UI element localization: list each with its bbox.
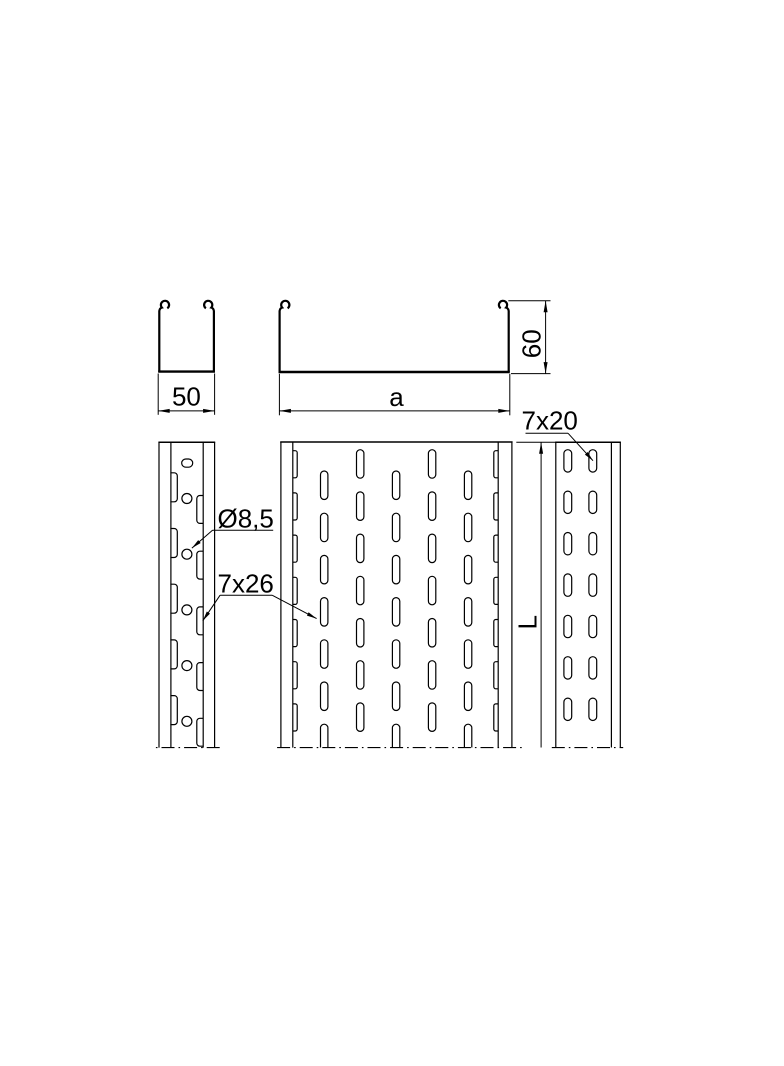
svg-text:L: L — [513, 615, 543, 629]
svg-text:50: 50 — [172, 381, 201, 411]
svg-text:Ø8,5: Ø8,5 — [218, 503, 274, 533]
svg-text:a: a — [389, 382, 404, 412]
svg-text:60: 60 — [516, 329, 546, 358]
svg-text:7x26: 7x26 — [218, 568, 274, 598]
svg-text:7x20: 7x20 — [522, 405, 578, 435]
